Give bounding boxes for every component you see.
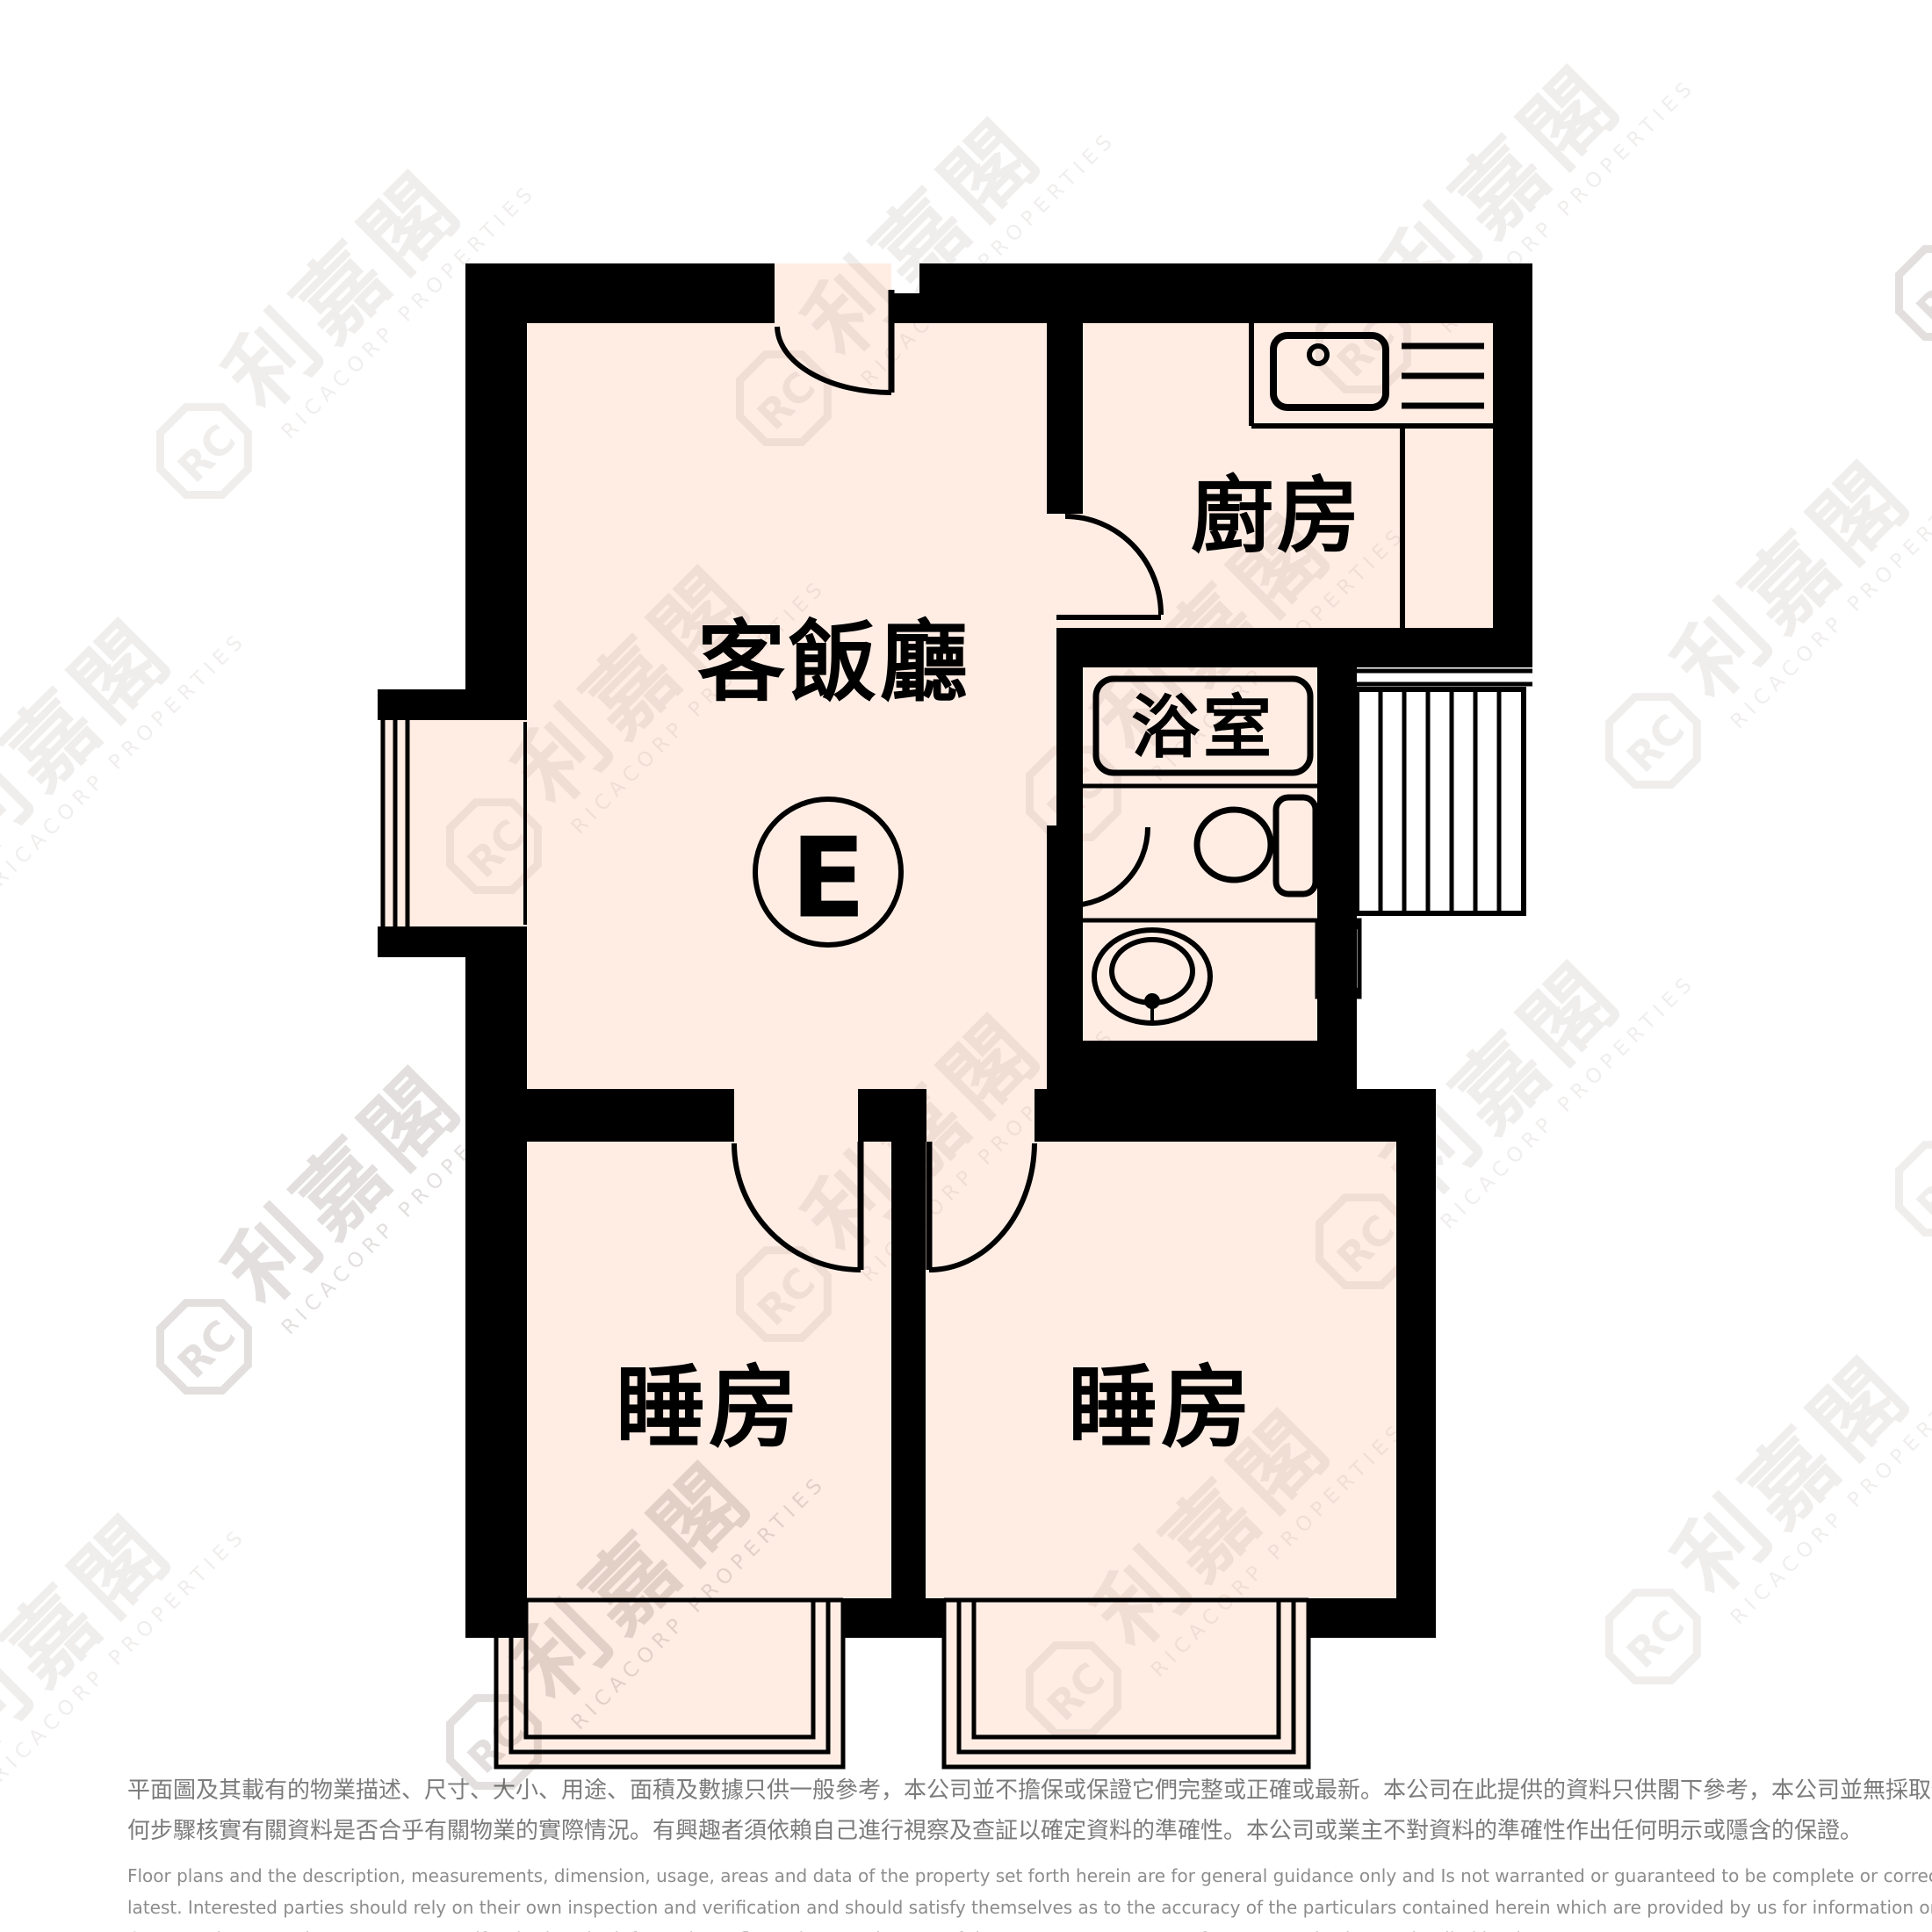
wall-left-upper (465, 263, 527, 689)
drying-platform-ledge (1357, 671, 1532, 684)
wall-band-left (465, 1089, 734, 1142)
disclaimer-chinese: 平面圖及其載有的物業描述、尺寸、大小、用途、面積及數據只供一般參考，本公司並不擔… (127, 1770, 1880, 1851)
disclaimer-english: Floor plans and the description, measure… (127, 1860, 1880, 1932)
living-bay-step-bottom (378, 926, 527, 957)
living-bay-step-top (378, 689, 527, 720)
bedroom2-door-gap (926, 1089, 1034, 1142)
bedroom2-label: 睡房 (1068, 1357, 1254, 1461)
wall-kitchen-bottom (1083, 628, 1532, 667)
kitchen-label: 廚房 (1191, 469, 1363, 565)
wall-living-bathroom (1047, 825, 1083, 1041)
wall-between-bedrooms (891, 1142, 926, 1600)
bathroom-door-leaf (1056, 628, 1083, 825)
living-dining-label: 客飯廳 (697, 611, 971, 714)
wall-band-right (1034, 1089, 1436, 1142)
disclaimer-en-line3: Company has not taken any step to verify… (127, 1923, 1880, 1932)
disclaimer-zh-line1: 平面圖及其載有的物業描述、尺寸、大小、用途、面積及數據只供一般參考，本公司並不擔… (127, 1770, 1880, 1811)
floorplan-page: 客飯廳 廚房 浴室 睡房 睡房 E 平面圖及其載有的物業描述、尺寸、大小、用途、… (0, 0, 1932, 1932)
wall-bottom-b (843, 1598, 944, 1638)
wall-band-middle (858, 1089, 926, 1142)
entrance-gap (775, 263, 891, 323)
wall-bottom-a (465, 1598, 496, 1638)
bedroom1-label: 睡房 (616, 1357, 802, 1461)
disclaimer-zh-line2: 何步驟核實有關資料是否合乎有關物業的實際情況。有興趣者須依賴自己進行視察及查証以… (127, 1811, 1880, 1851)
wall-top-hinge-stub (891, 293, 919, 323)
wall-top-right (919, 263, 1532, 323)
wall-left-lower (465, 957, 527, 1638)
bathroom-label: 浴室 (1131, 688, 1275, 768)
entrance-left-stub (751, 290, 775, 323)
disclaimer: 平面圖及其載有的物業描述、尺寸、大小、用途、面積及數據只供一般參考，本公司並不擔… (127, 1770, 1880, 1932)
living-bay-window-floor (380, 720, 527, 926)
wall-bottom-c (1308, 1598, 1436, 1638)
wall-living-kitchen (1047, 323, 1083, 514)
floor-plan: 客飯廳 廚房 浴室 睡房 睡房 E (0, 0, 1932, 1932)
wall-bedroom2-right (1396, 1089, 1436, 1638)
bedroom2-bay-floor (944, 1600, 1308, 1767)
bedroom1-door-gap (734, 1089, 858, 1142)
wall-kitchen-right (1493, 263, 1532, 667)
disclaimer-en-line2: latest. Interested parties should rely o… (127, 1892, 1880, 1923)
drying-platform (1357, 671, 1532, 913)
bedroom1-bay-floor (496, 1600, 843, 1767)
unit-label: E (790, 814, 866, 943)
disclaimer-en-line1: Floor plans and the description, measure… (127, 1860, 1880, 1892)
